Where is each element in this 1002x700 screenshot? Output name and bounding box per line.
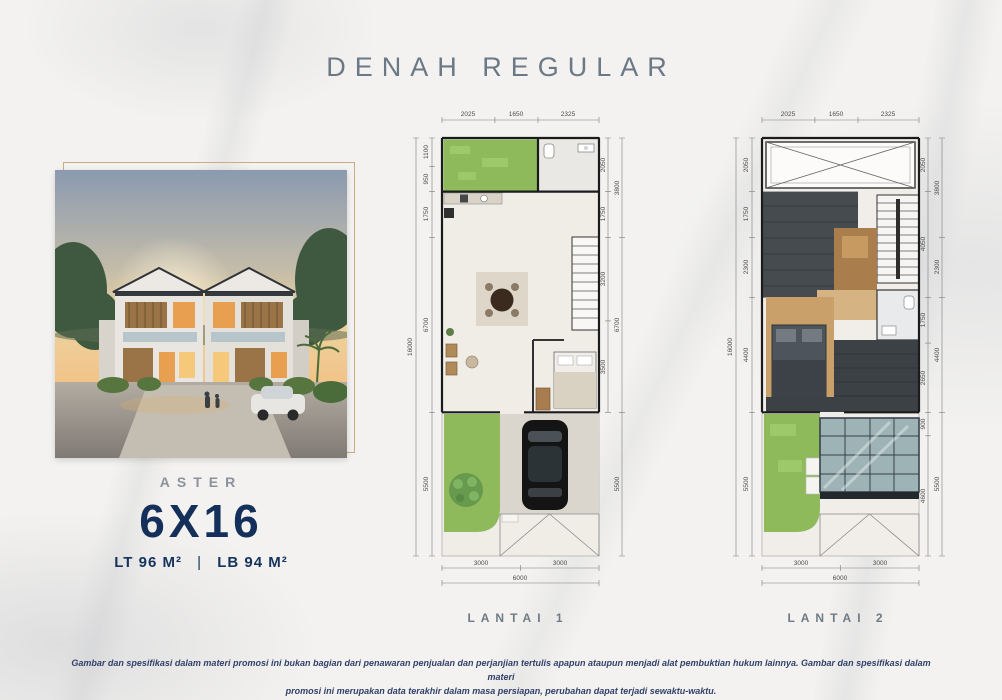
- dim-label: 2050: [920, 157, 927, 172]
- page-title: DENAH REGULAR: [0, 52, 1002, 83]
- floor-plan-1-drawing: 2025 1650 2325 1100 950 1750 6700 5500 1…: [402, 100, 634, 592]
- dim-top: 2025 1650 2325: [762, 111, 919, 123]
- dim-label: 1650: [829, 111, 844, 118]
- plan-label-lantai-2: LANTAI 2: [722, 611, 954, 625]
- dim-label: 1650: [509, 111, 524, 118]
- stairs: [877, 195, 919, 283]
- dim-label: 2025: [461, 111, 476, 118]
- dim-label: 2050: [743, 157, 750, 172]
- dim-bottom: 3000 3000 6000: [762, 560, 919, 586]
- dim-label: 3000: [553, 560, 568, 567]
- disclaimer-line-2: promosi ini merupakan data terakhir dala…: [60, 684, 942, 698]
- sun-reflection: [120, 396, 230, 414]
- glass-canopy: [820, 418, 919, 499]
- dim-bottom: 3000 3000 6000: [442, 560, 599, 586]
- dim-label: 4600: [920, 488, 927, 503]
- landing-wood: [834, 228, 877, 290]
- dim-label: 950: [423, 173, 430, 184]
- dim-label: 6700: [423, 317, 430, 332]
- dim-label: 1750: [423, 206, 430, 221]
- dim-right-inner: 2050 1750 3200 3500: [600, 138, 611, 412]
- bathroom: [877, 290, 919, 340]
- house-render-image: [55, 170, 347, 458]
- product-block: ASTER 6X16 LT 96 M² | LB 94 M²: [55, 474, 347, 571]
- house-unit-left: [113, 268, 205, 385]
- product-land-area: LT 96 M²: [114, 554, 182, 571]
- dim-right-outer: 3800 6700 5500: [614, 138, 625, 556]
- dim-left-outer: 16000: [727, 138, 739, 556]
- dim-label: 5500: [743, 476, 750, 491]
- dim-label: 900: [920, 418, 927, 429]
- dim-right-inner: 2050 4050 1750 2650 900 4600: [920, 138, 931, 556]
- dim-label: 2300: [743, 259, 750, 274]
- house-unit-right: [203, 268, 295, 385]
- dim-label: 2025: [781, 111, 796, 118]
- dim-label: 3000: [474, 560, 489, 567]
- dim-label: 2300: [934, 259, 941, 274]
- dim-label: 4050: [920, 236, 927, 251]
- plan-label-lantai-1: LANTAI 1: [402, 611, 634, 625]
- dim-label: 4400: [934, 347, 941, 362]
- dim-label: 3200: [600, 271, 607, 286]
- dim-label: 1750: [920, 312, 927, 327]
- disclaimer-line-1: Gambar dan spesifikasi dalam materi prom…: [60, 656, 942, 684]
- dim-label: 3500: [600, 359, 607, 374]
- dim-label: 3000: [794, 560, 809, 567]
- dim-label: 3800: [614, 180, 621, 195]
- product-area-separator: |: [197, 554, 202, 571]
- product-size: 6X16: [55, 494, 347, 548]
- dim-label: 5500: [614, 476, 621, 491]
- dim-label: 16000: [407, 338, 414, 356]
- floor-plan-2-drawing: 2025 1650 2325 2050 1750 2300 4400 5500 …: [722, 100, 954, 592]
- dim-label: 1750: [743, 206, 750, 221]
- dim-left-inner: 1100 950 1750 6700 5500: [423, 138, 435, 556]
- dim-label: 5500: [423, 476, 430, 491]
- void-area: [766, 142, 915, 188]
- dim-left-inner: 2050 1750 2300 4400 5500: [743, 138, 755, 556]
- product-building-area: LB 94 M²: [217, 554, 288, 571]
- stairs: [572, 237, 599, 330]
- bathroom: [538, 138, 599, 192]
- front-garden: [444, 414, 500, 532]
- bedroom: [766, 297, 834, 409]
- dim-label: 6700: [614, 317, 621, 332]
- dim-label: 1100: [423, 145, 430, 159]
- dim-label: 3800: [934, 180, 941, 195]
- brochure-canvas: DENAH REGULAR: [0, 0, 1002, 700]
- carport: [500, 414, 599, 514]
- dim-label: 4400: [743, 347, 750, 362]
- dim-label: 1750: [600, 206, 607, 221]
- dim-label: 5500: [934, 476, 941, 491]
- disclaimer: Gambar dan spesifikasi dalam materi prom…: [60, 656, 942, 698]
- house-render-art: [55, 170, 347, 458]
- dim-right-outer: 3800 2300 4400 5500: [934, 138, 945, 556]
- dim-label: 3000: [873, 560, 888, 567]
- dim-label: 6000: [513, 575, 528, 582]
- dim-label: 6000: [833, 575, 848, 582]
- dim-left-outer: 16000: [407, 138, 419, 556]
- product-series: ASTER: [55, 474, 347, 490]
- dim-label: 16000: [727, 338, 734, 356]
- dim-label: 2050: [600, 157, 607, 172]
- dim-label: 2325: [881, 111, 896, 118]
- dining-area: [476, 272, 528, 326]
- floor-plan-2: 2025 1650 2325 2050 1750 2300 4400 5500 …: [722, 100, 954, 625]
- floor-plan-1: 2025 1650 2325 1100 950 1750 6700 5500 1…: [402, 100, 634, 625]
- dim-label: 2650: [920, 370, 927, 385]
- dim-label: 2325: [561, 111, 576, 118]
- dim-top: 2025 1650 2325: [442, 111, 599, 123]
- product-areas: LT 96 M² | LB 94 M²: [55, 554, 347, 571]
